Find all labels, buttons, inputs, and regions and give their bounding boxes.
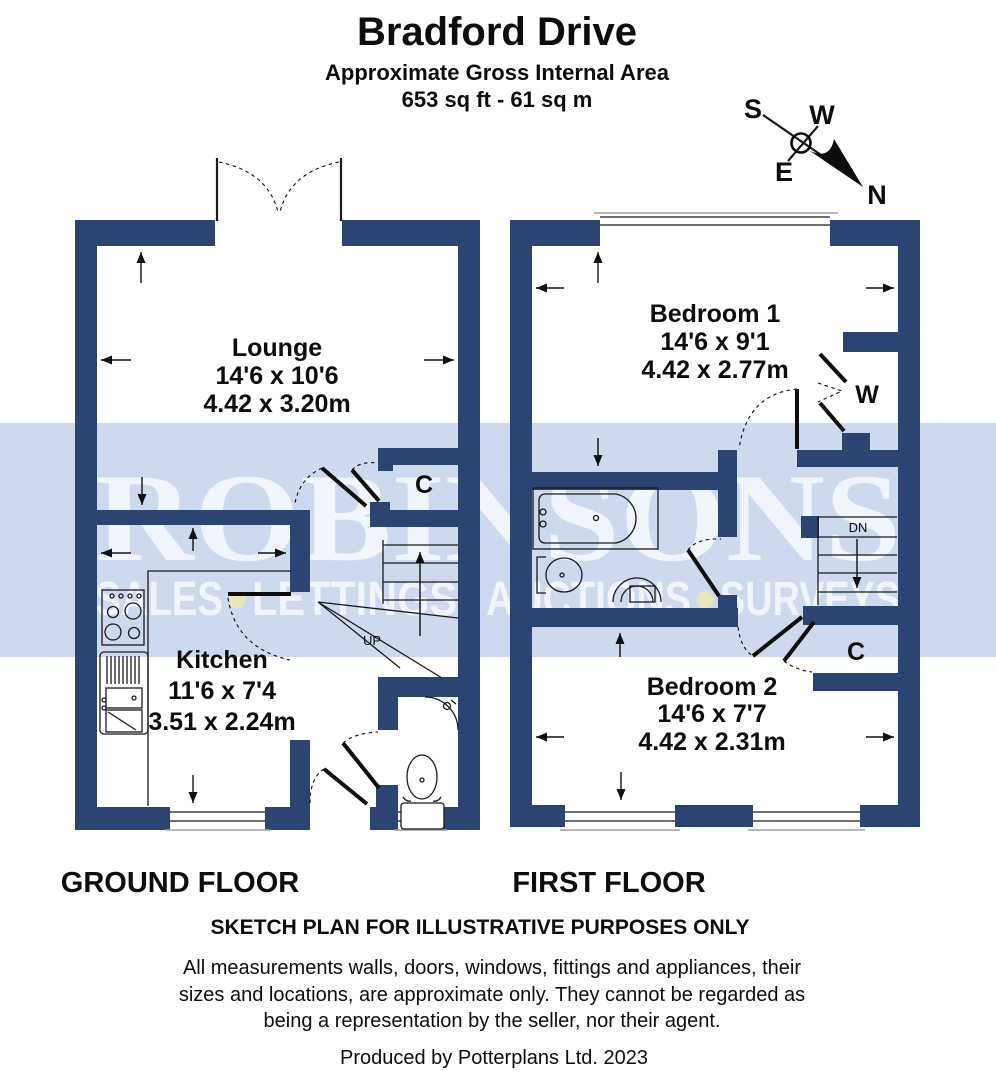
disclaimer-line-2: sizes and locations, are approximate onl… bbox=[179, 984, 805, 1006]
bedroom2-name: Bedroom 2 bbox=[647, 673, 778, 701]
corner-basin-icon bbox=[425, 697, 458, 730]
bedroom1-metric: 4.42 x 2.77m bbox=[641, 356, 788, 384]
kitchen-metric: 3.51 x 2.24m bbox=[148, 708, 295, 736]
lounge-imperial: 14'6 x 10'6 bbox=[215, 362, 338, 390]
footer: SKETCH PLAN FOR ILLUSTRATIVE PURPOSES ON… bbox=[179, 916, 805, 1069]
compass-north: N bbox=[867, 180, 887, 210]
floorplan-page: ROBINSONS SALES LETTINGS AUCTIONS SURVEY… bbox=[0, 0, 996, 1080]
wardrobe-label: W bbox=[855, 381, 879, 409]
lounge-room: Lounge 14'6 x 10'6 4.42 x 3.20m bbox=[203, 334, 350, 418]
disclaimer-line-1: All measurements walls, doors, windows, … bbox=[183, 957, 801, 979]
bedroom1-room: Bedroom 1 14'6 x 9'1 4.42 x 2.77m bbox=[641, 300, 788, 384]
page-title: Bradford Drive bbox=[357, 10, 637, 54]
ground-floor-walls bbox=[75, 220, 480, 830]
disclaimer-line-3: being a representation by the seller, no… bbox=[264, 1010, 721, 1032]
tagline-word-sales: SALES bbox=[95, 573, 223, 626]
ground-cupboard-label: C bbox=[415, 471, 433, 499]
tagline-bullet-icon bbox=[697, 592, 714, 609]
kitchen-name: Kitchen bbox=[176, 646, 268, 674]
page-subtitle: Approximate Gross Internal Area bbox=[325, 60, 670, 85]
stairs-up-label: UP bbox=[363, 633, 381, 648]
stairs-down-label: DN bbox=[849, 520, 868, 535]
bedroom1-imperial: 14'6 x 9'1 bbox=[660, 328, 769, 356]
wc-door bbox=[343, 732, 379, 788]
toilet-icon bbox=[401, 755, 444, 829]
front-door bbox=[310, 769, 367, 804]
sketch-note: SKETCH PLAN FOR ILLUSTRATIVE PURPOSES ON… bbox=[210, 916, 749, 939]
first-cupboard-label: C bbox=[847, 638, 865, 666]
header: Bradford Drive Approximate Gross Interna… bbox=[325, 10, 670, 112]
lounge-metric: 4.42 x 3.20m bbox=[203, 390, 350, 418]
bedroom2-room: Bedroom 2 14'6 x 7'7 4.42 x 2.31m bbox=[638, 673, 785, 756]
first-floor-label: FIRST FLOOR bbox=[512, 867, 705, 899]
french-doors bbox=[217, 158, 341, 221]
compass-south: S bbox=[744, 94, 762, 124]
floor-labels: GROUND FLOOR FIRST FLOOR bbox=[61, 867, 706, 899]
page-area: 653 sq ft - 61 sq m bbox=[402, 87, 593, 112]
kitchen-room: Kitchen 11'6 x 7'4 3.51 x 2.24m bbox=[148, 646, 295, 736]
compass-east: E bbox=[775, 157, 793, 187]
watermark-tagline: SALES LETTINGS AUCTIONS SURVEYS bbox=[95, 573, 900, 626]
lounge-name: Lounge bbox=[232, 334, 322, 362]
produced-by: Produced by Potterplans Ltd. 2023 bbox=[340, 1047, 648, 1069]
compass-rose-icon: S W E N bbox=[744, 94, 887, 210]
kitchen-sink-icon bbox=[100, 652, 148, 734]
bedroom2-imperial: 14'6 x 7'7 bbox=[657, 700, 766, 728]
wardrobe-bifold-doors bbox=[818, 354, 846, 431]
ground-floor-label: GROUND FLOOR bbox=[61, 867, 299, 899]
compass-west: W bbox=[809, 100, 835, 130]
kitchen-imperial: 11'6 x 7'4 bbox=[168, 677, 276, 705]
bedroom2-metric: 4.42 x 2.31m bbox=[638, 728, 785, 756]
bedroom1-name: Bedroom 1 bbox=[650, 300, 781, 328]
compass-north-arrow-icon bbox=[810, 139, 863, 187]
